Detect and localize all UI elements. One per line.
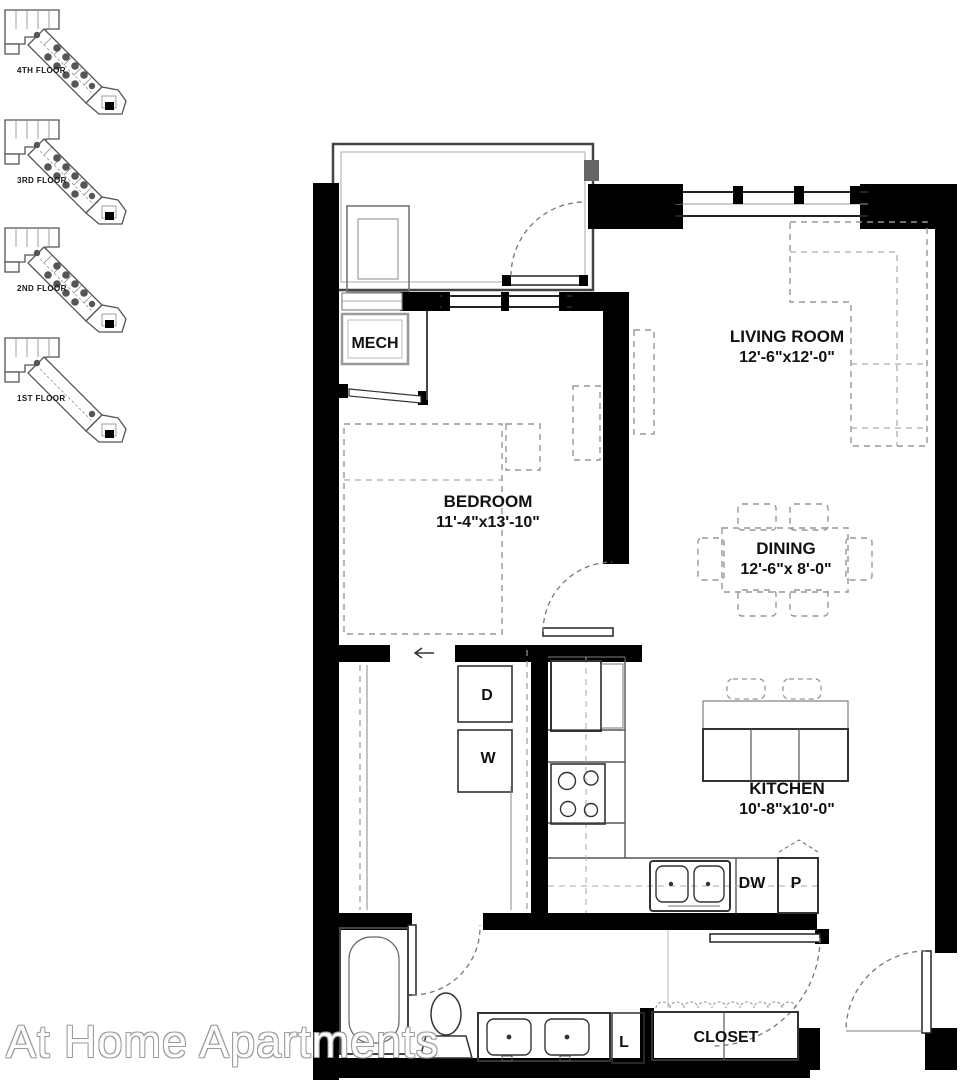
furniture bbox=[344, 222, 927, 634]
closet-label: CLOSET bbox=[694, 1028, 759, 1048]
balcony bbox=[333, 144, 599, 292]
room-dims: 10'-8"x10'-0" bbox=[739, 800, 835, 820]
living-room-label: LIVING ROOM 12'-6"x12'-0" bbox=[730, 327, 844, 367]
kitchen-label: KITCHEN 10'-8"x10'-0" bbox=[739, 779, 835, 819]
bedroom-label: BEDROOM 11'-4"x13'-10" bbox=[436, 492, 540, 532]
dishwasher-label: DW bbox=[739, 875, 766, 893]
room-dims: 11'-4"x13'-10" bbox=[436, 513, 540, 533]
washer-label: W bbox=[480, 750, 495, 768]
watermark: At Home Apartments bbox=[6, 1016, 439, 1068]
pantry-label: P bbox=[791, 875, 802, 893]
room-dims: 12'-6"x12'-0" bbox=[730, 348, 844, 368]
mech-room bbox=[342, 311, 427, 403]
floorplan-page: 4TH FLOOR bbox=[0, 0, 961, 1080]
laundry bbox=[458, 666, 512, 792]
room-name: BEDROOM bbox=[436, 492, 540, 513]
dining-label: DINING 12'-6"x 8'-0" bbox=[740, 539, 831, 579]
room-dims: 12'-6"x 8'-0" bbox=[740, 560, 831, 580]
mech-label: MECH bbox=[351, 334, 398, 354]
room-name: DINING bbox=[740, 539, 831, 560]
hall-closet-lines bbox=[360, 650, 668, 1008]
room-name: KITCHEN bbox=[739, 779, 835, 800]
room-name: LIVING ROOM bbox=[730, 327, 844, 348]
linen-label: L bbox=[619, 1034, 629, 1052]
dryer-label: D bbox=[481, 687, 493, 705]
